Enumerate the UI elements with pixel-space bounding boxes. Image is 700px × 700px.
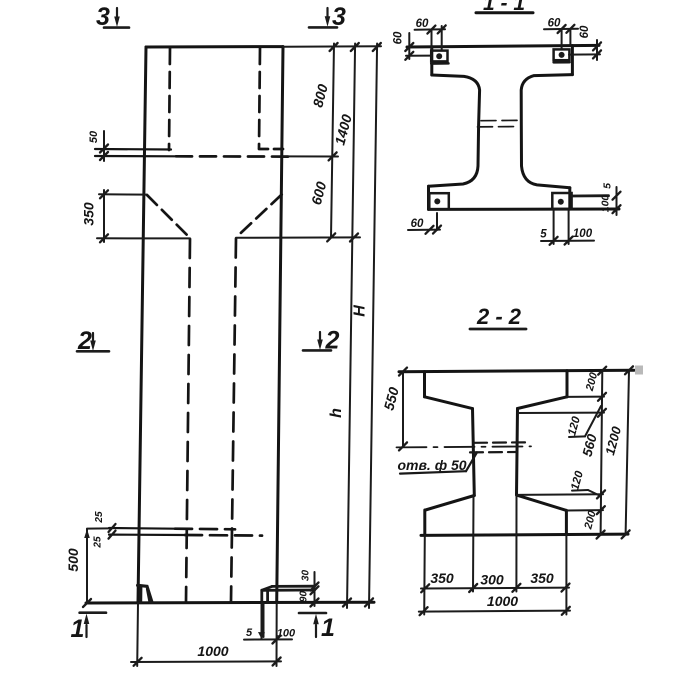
svg-text:100: 100 — [573, 228, 593, 240]
svg-text:200: 200 — [584, 370, 601, 393]
svg-text:350: 350 — [81, 202, 97, 226]
svg-text:200: 200 — [582, 509, 599, 532]
svg-text:h: h — [328, 408, 345, 418]
svg-text:2: 2 — [77, 327, 92, 355]
svg-text:1000: 1000 — [197, 643, 228, 659]
svg-text:5: 5 — [602, 183, 614, 189]
svg-text:25: 25 — [94, 511, 105, 524]
svg-text:550: 550 — [380, 385, 402, 412]
svg-text:1: 1 — [321, 614, 335, 642]
svg-text:2: 2 — [325, 327, 340, 355]
svg-text:100: 100 — [600, 195, 612, 213]
svg-text:60: 60 — [411, 218, 424, 230]
svg-text:60: 60 — [579, 25, 591, 38]
svg-text:5: 5 — [246, 627, 253, 639]
svg-text:1: 1 — [71, 615, 85, 643]
svg-text:300: 300 — [480, 572, 504, 588]
svg-text:800: 800 — [309, 82, 331, 109]
svg-text:50: 50 — [88, 130, 100, 143]
svg-text:350: 350 — [530, 570, 554, 586]
svg-text:30: 30 — [301, 570, 312, 582]
svg-text:60: 60 — [416, 18, 429, 30]
svg-text:90: 90 — [299, 591, 310, 603]
svg-text:350: 350 — [430, 570, 454, 586]
svg-text:1000: 1000 — [487, 593, 518, 609]
svg-text:60: 60 — [548, 18, 561, 30]
svg-text:2 - 2: 2 - 2 — [476, 304, 522, 329]
svg-text:5: 5 — [540, 229, 547, 241]
svg-text:120: 120 — [569, 469, 586, 491]
svg-text:60: 60 — [393, 31, 405, 44]
svg-text:1400: 1400 — [331, 112, 355, 146]
svg-text:500: 500 — [65, 548, 81, 572]
svg-text:25: 25 — [93, 536, 104, 549]
svg-text:120: 120 — [566, 415, 583, 437]
svg-text:100: 100 — [277, 628, 296, 640]
svg-text:3: 3 — [96, 3, 110, 31]
svg-text:600: 600 — [308, 180, 330, 207]
svg-text:3: 3 — [332, 3, 346, 31]
svg-text:H: H — [352, 305, 369, 317]
svg-text:1200: 1200 — [602, 424, 624, 457]
